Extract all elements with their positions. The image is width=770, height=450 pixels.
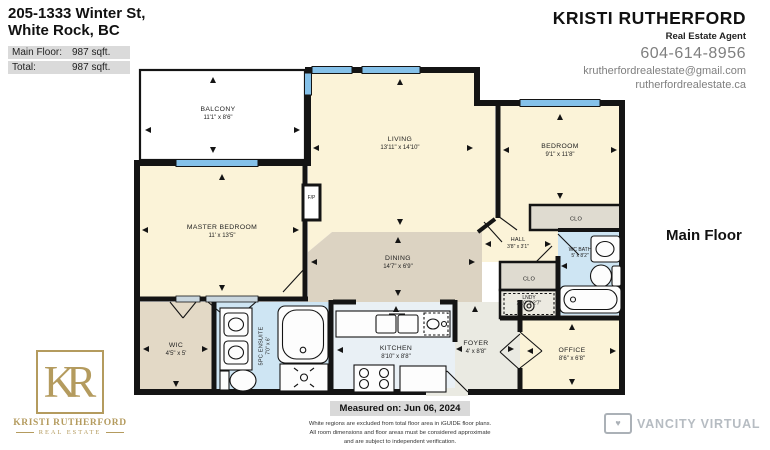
kr-logo-name: KRISTI RUTHERFORD [6,418,134,428]
toilet-fixture [220,371,229,390]
svg-text:5' x 8'2": 5' x 8'2" [571,253,589,259]
disclaimer-text: White regions are excluded from total fl… [235,420,565,447]
kr-logo-subtitle: REAL ESTATE [6,429,134,436]
toilet-fixture [591,265,612,287]
kr-monogram: KR [44,360,97,405]
label-balcony: BALCONY [201,106,236,113]
svg-text:4' x 8'8": 4' x 8'8" [466,349,487,355]
vancity-logo: ♥ VANCITY VIRTUAL [604,413,760,434]
label-living: LIVING [388,136,412,143]
label-dining: DINING [385,255,411,262]
camera-heart-icon: ♥ [604,413,632,434]
kr-logo: KR KRISTI RUTHERFORD REAL ESTATE [6,350,134,436]
svg-text:11'1" x 8'6": 11'1" x 8'6" [203,115,232,121]
vanity-counter [220,308,252,370]
label-wic: WIC [169,342,183,349]
kr-monogram-box: KR [36,350,104,414]
svg-text:11' x 13'5": 11' x 13'5" [209,233,236,239]
label-fireplace: F/P [308,195,316,201]
svg-text:3'8" x 3'1": 3'8" x 3'1" [507,244,529,250]
label-hall-closet: CLO [523,277,536,283]
label-office: OFFICE [558,347,585,354]
room-living [308,70,495,252]
svg-text:8'6" x 6'8": 8'6" x 6'8" [559,356,585,362]
label-master-bedroom: MASTER BEDROOM [187,224,257,231]
fireplace-niche [303,185,320,220]
vancity-logo-text: VANCITY VIRTUAL [637,417,760,431]
sink-fixture [591,236,620,262]
label-bedroom-closet: CLO [570,217,583,223]
svg-text:5PC ENSUITE: 5PC ENSUITE [259,326,265,365]
measured-on-badge: Measured on: Jun 06, 2024 [330,401,471,416]
svg-text:13'11" x 14'10": 13'11" x 14'10" [380,145,419,151]
stove [354,365,394,392]
kitchen-counter-2 [400,366,446,392]
svg-text:8'10" x 8'8": 8'10" x 8'8" [381,354,411,360]
label-kitchen: KITCHEN [380,345,412,352]
svg-text:14'7" x 6'9": 14'7" x 6'9" [383,264,413,270]
label-bedroom: BEDROOM [541,143,579,150]
label-hall: HALL [511,237,526,243]
svg-text:4'5" x 5': 4'5" x 5' [166,351,187,357]
plan-footer: Measured on: Jun 06, 2024 White regions … [235,398,565,447]
label-foyer: FOYER [463,340,488,347]
svg-text:2'10" x 2'7": 2'10" x 2'7" [517,301,542,307]
svg-text:9'1" x 11'8": 9'1" x 11'8" [545,152,574,158]
shower-fixture [280,364,328,391]
svg-text:7'0" x 6': 7'0" x 6' [266,337,272,354]
